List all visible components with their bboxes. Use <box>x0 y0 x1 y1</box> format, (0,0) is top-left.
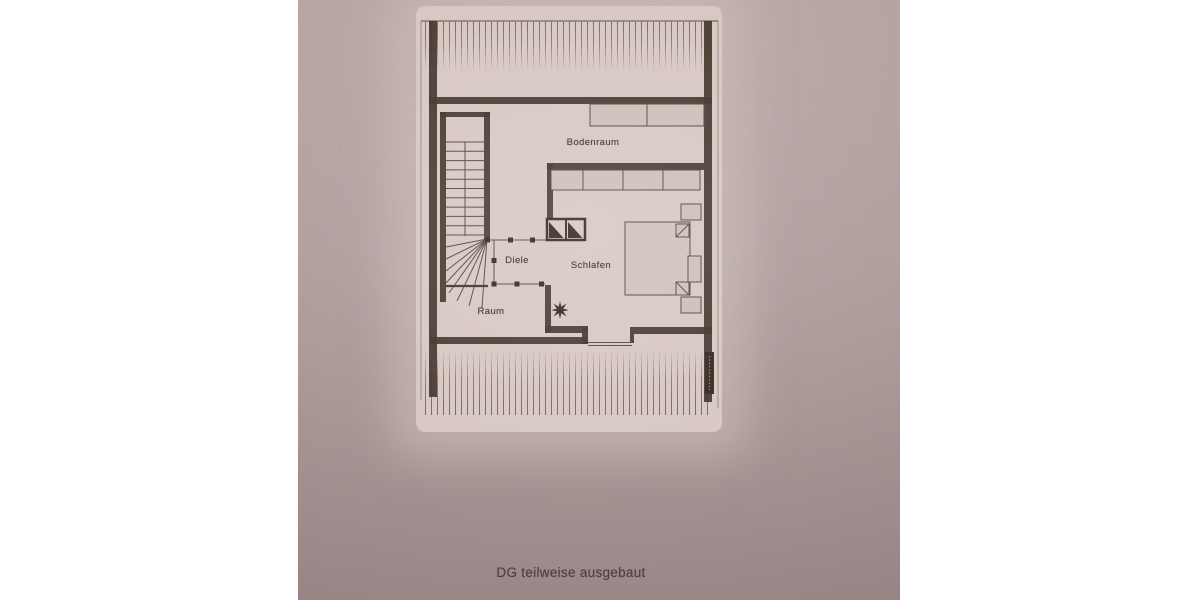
plan-linework <box>298 0 900 600</box>
roof-edge-lines <box>421 21 718 408</box>
side-table <box>688 256 701 282</box>
room-label-schlafen: Schlafen <box>571 261 611 271</box>
room-label-raum: Raum <box>478 307 505 317</box>
chimney <box>547 219 585 240</box>
room-label-bodenraum: Bodenraum <box>567 138 620 148</box>
room-label-diele: Diele <box>505 256 529 266</box>
star-symbol <box>551 301 569 319</box>
schlafen-closet-row <box>551 170 700 190</box>
walls <box>429 21 712 402</box>
plan-drawing: Bodenraum Diele Schlafen Raum <box>298 0 900 600</box>
plan-caption: DG teilweise ausgebaut <box>496 566 645 580</box>
dormer-window <box>588 343 632 346</box>
staircase <box>446 142 488 308</box>
nightstand-bottom <box>681 297 701 313</box>
double-bed <box>625 222 690 295</box>
nightstand-top <box>681 204 701 220</box>
bodenraum-cabinet <box>590 104 704 126</box>
stair-winder-treads <box>446 239 487 308</box>
wall-stamp <box>705 352 714 394</box>
floorplan-photo: Bodenraum Diele Schlafen Raum DG teilwei… <box>298 0 900 600</box>
